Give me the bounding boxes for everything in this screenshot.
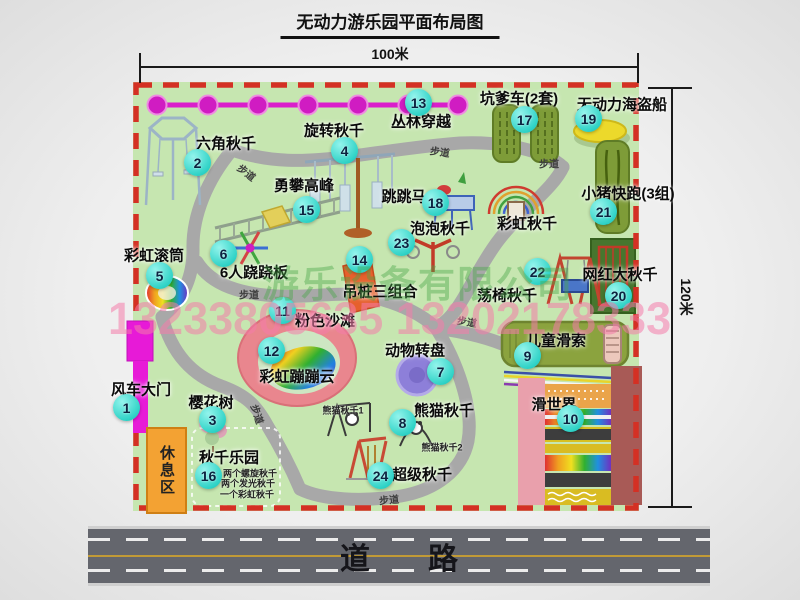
label-rainbow-bounce-cloud: 彩虹蹦蹦云 [259, 366, 334, 387]
badge-hanging-post-combo: 14 [346, 246, 373, 273]
rest-area: 休息区 [146, 427, 187, 514]
road-label: 道路 [117, 534, 739, 578]
path-label: 步道 [378, 491, 399, 508]
badge-giant-swing: 20 [605, 282, 632, 309]
sublabel-panda-swing-1: 熊猫秋千1 [322, 404, 363, 417]
badge-panda-swing: 8 [389, 409, 416, 436]
badge-climbing-peak: 15 [293, 196, 320, 223]
badge-animal-carousel: 7 [427, 358, 454, 385]
badge-rainbow-roller: 5 [146, 262, 173, 289]
slide-world-icon [518, 366, 642, 505]
badge-rotating-swing: 4 [331, 137, 358, 164]
badge-windmill-gate: 1 [113, 394, 140, 421]
badge-swing-park: 16 [195, 462, 222, 489]
badge-slide-world: 10 [557, 405, 584, 432]
path-label: 步道 [539, 156, 559, 171]
badge-bubble-swing: 23 [388, 229, 415, 256]
label-climbing-peak: 勇攀高峰 [274, 175, 334, 196]
badge-jumping-horse: 18 [422, 189, 449, 216]
badge-rainbow-bounce-cloud: 12 [258, 337, 285, 364]
badge-piggy-run: 21 [590, 198, 617, 225]
badge-hexagon-swing: 2 [184, 149, 211, 176]
screenshot-stage: 无动力游乐园平面布局图 100米 120米 [0, 0, 800, 600]
label-animal-carousel: 动物转盘 [385, 340, 445, 361]
sublabel-panda-swing-2: 熊猫秋千2 [421, 441, 462, 454]
path-label: 步道 [456, 312, 478, 330]
badge-super-swing: 24 [367, 462, 394, 489]
label-rocking-chair-swing: 荡椅秋千 [477, 285, 537, 306]
label-rotating-swing: 旋转秋千 [304, 120, 364, 141]
path-label: 步道 [239, 287, 259, 302]
badge-rocking-chair-swing: 22 [524, 258, 551, 285]
label-pit-car: 坑爹车(2套) [480, 88, 558, 109]
badge-pit-car: 17 [511, 106, 538, 133]
path-label: 步道 [429, 142, 451, 160]
badge-pink-beach: 11 [269, 297, 296, 324]
road: 道路 [88, 526, 710, 586]
label-pink-beach: 粉色沙滩 [295, 310, 355, 331]
badge-cherry-tree: 3 [199, 406, 226, 433]
badge-jungle-crossing: 13 [405, 89, 432, 116]
label-rainbow-swing: 彩虹秋千 [497, 213, 557, 234]
label-super-swing: 超级秋千 [392, 464, 452, 485]
badge-pirate-ship: 19 [575, 105, 602, 132]
sublabel-swing-park-3: 一个彩虹秋千 [220, 488, 274, 501]
label-panda-swing: 熊猫秋千 [414, 400, 474, 421]
label-jumping-horse: 跳跳马 [381, 186, 426, 207]
label-hanging-post-combo: 吊桩三组合 [342, 281, 417, 302]
badge-kids-zipline: 9 [514, 342, 541, 369]
badge-six-person-seesaw: 6 [210, 240, 237, 267]
label-bubble-swing: 泡泡秋千 [410, 218, 470, 239]
